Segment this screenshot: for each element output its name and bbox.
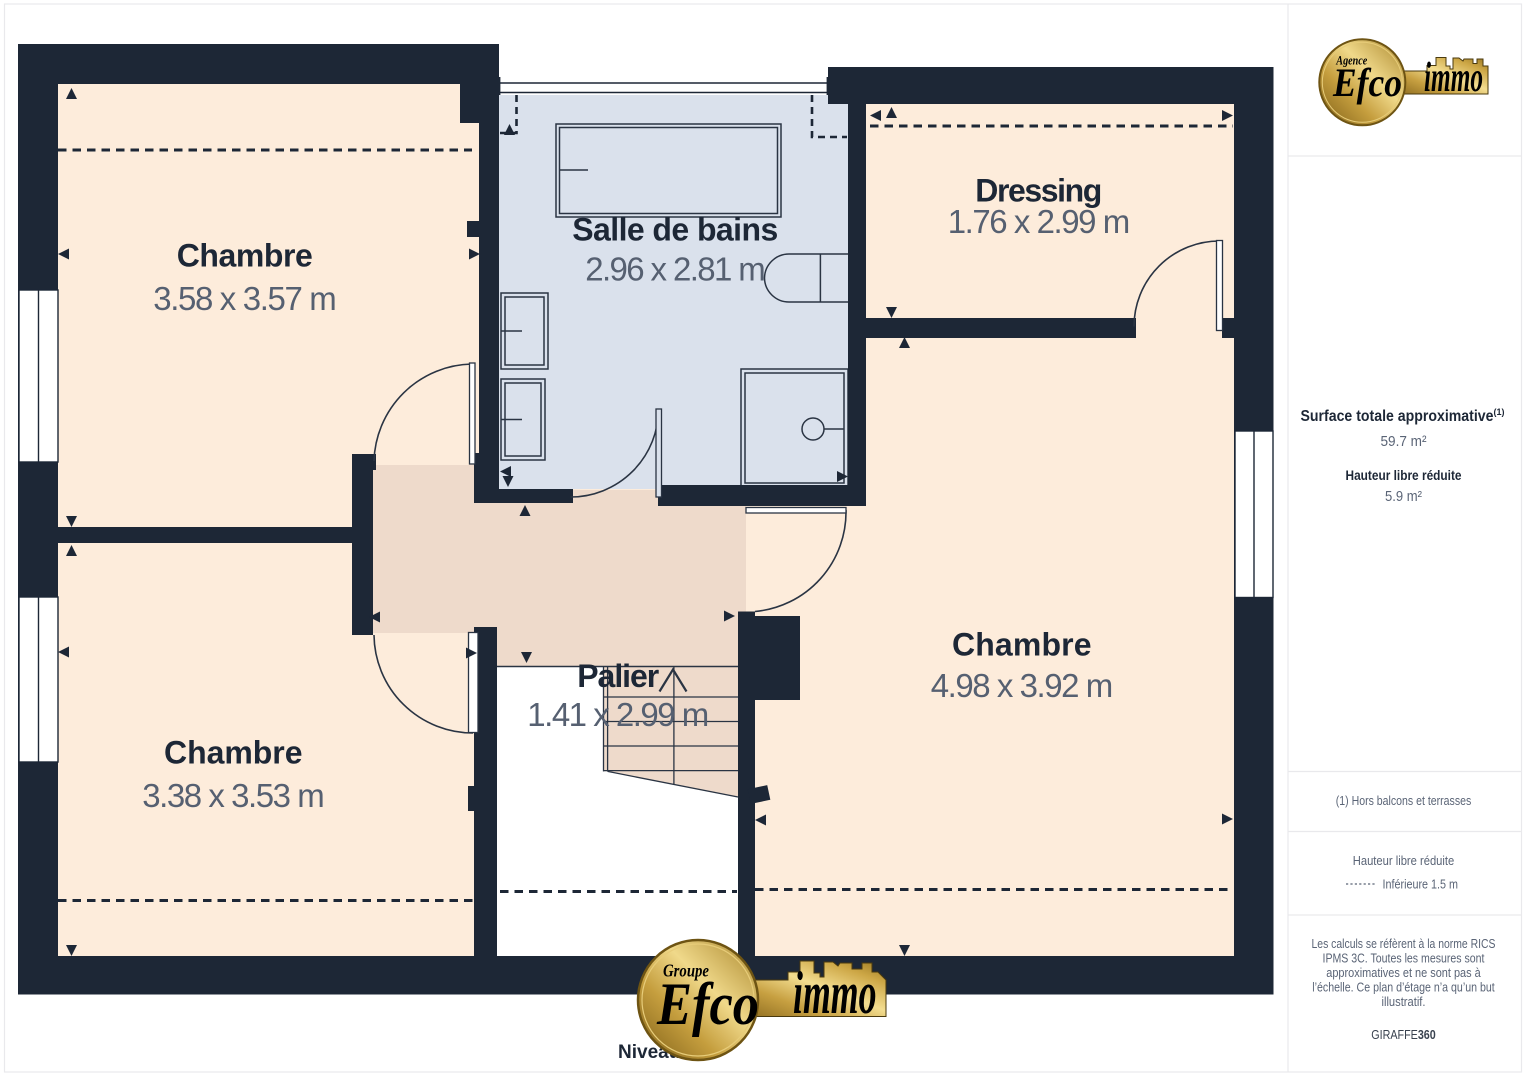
svg-text:Efco: Efco [1332, 60, 1402, 105]
svg-text:4.98 x 3.92 m: 4.98 x 3.92 m [931, 667, 1114, 704]
svg-text:59.7 m²: 59.7 m² [1381, 433, 1427, 450]
svg-text:3.58 x 3.57 m: 3.58 x 3.57 m [153, 280, 337, 317]
svg-text:2.96 x 2.81 m: 2.96 x 2.81 m [585, 251, 766, 288]
svg-text:Palier: Palier [577, 658, 660, 694]
svg-text:(1) Hors balcons et terrasses: (1) Hors balcons et terrasses [1336, 793, 1472, 808]
svg-text:Efco: Efco [656, 971, 759, 1037]
svg-text:1.41 x 2.99 m: 1.41 x 2.99 m [527, 696, 709, 733]
svg-text:Surface totale approximative(1: Surface totale approximative(1) [1301, 407, 1505, 425]
svg-text:l’échelle. Ce plan d’étage n’a: l’échelle. Ce plan d’étage n’a qu’un but [1312, 980, 1495, 995]
svg-text:3.38 x 3.53 m: 3.38 x 3.53 m [142, 777, 325, 814]
svg-text:Hauteur libre réduite: Hauteur libre réduite [1346, 467, 1462, 483]
svg-text:Chambre: Chambre [952, 627, 1092, 663]
svg-text:Chambre: Chambre [177, 238, 314, 274]
svg-text:5.9 m²: 5.9 m² [1385, 489, 1422, 505]
svg-text:Salle de bains: Salle de bains [572, 212, 779, 248]
svg-text:Les calculs se réfèrent à la n: Les calculs se réfèrent à la norme RICS [1312, 936, 1496, 951]
svg-text:Hauteur libre réduite: Hauteur libre réduite [1353, 853, 1455, 868]
svg-text:GIRAFFE360: GIRAFFE360 [1371, 1027, 1436, 1042]
svg-text:Inférieure 1.5 m: Inférieure 1.5 m [1383, 877, 1459, 892]
svg-text:immo: immo [1424, 55, 1483, 101]
svg-text:Chambre: Chambre [164, 735, 303, 771]
svg-text:IPMS 3C. Toutes les mesures so: IPMS 3C. Toutes les mesures sont [1323, 951, 1485, 966]
svg-text:immo: immo [793, 960, 877, 1026]
svg-text:illustratif.: illustratif. [1382, 994, 1426, 1009]
svg-text:1.76 x 2.99 m: 1.76 x 2.99 m [948, 203, 1131, 240]
svg-text:approximatives et ne sont pas: approximatives et ne sont pas à [1326, 965, 1481, 980]
